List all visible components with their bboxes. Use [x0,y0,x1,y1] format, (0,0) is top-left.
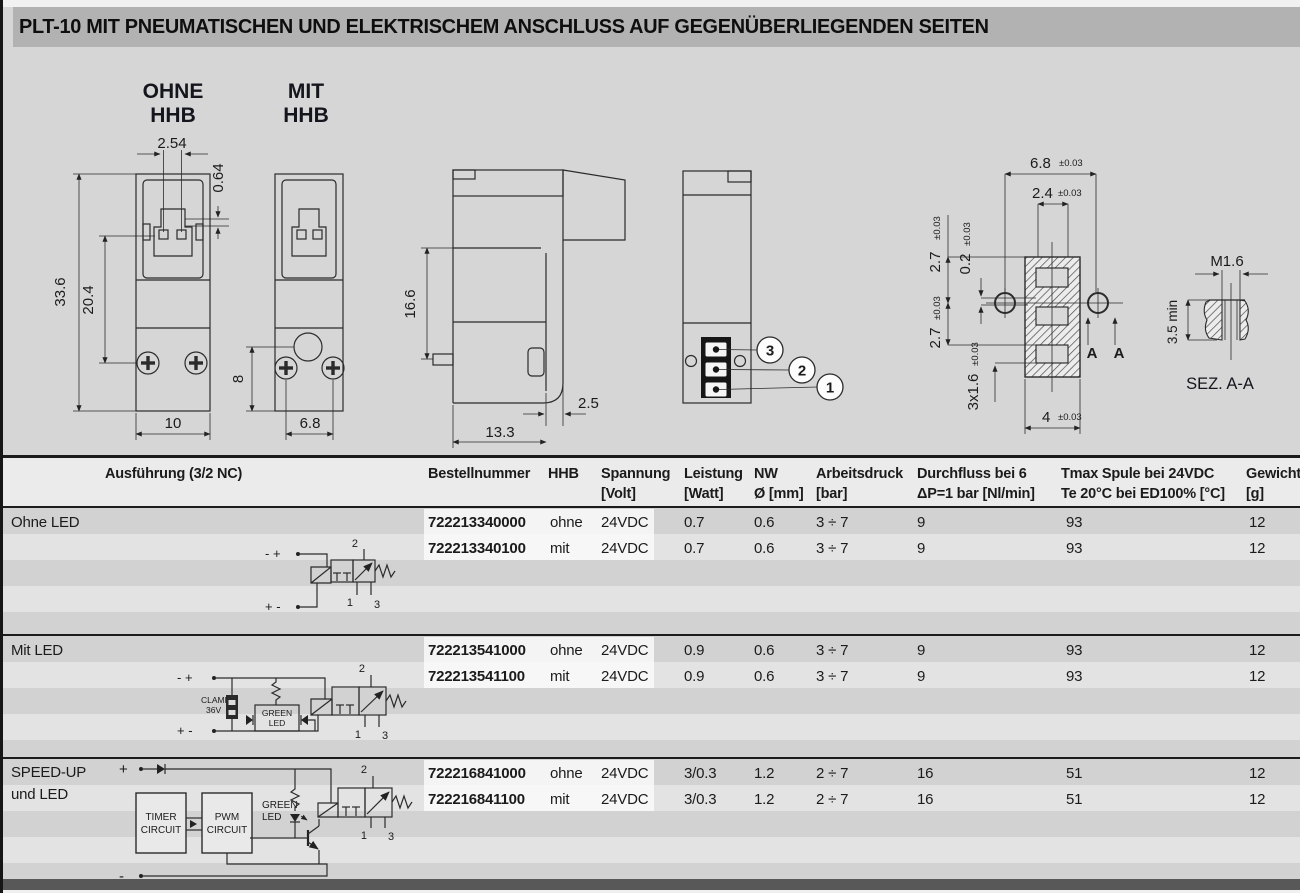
col-header-bestellnummer: Bestellnummer [428,464,530,484]
spring-symbol [386,695,406,707]
variant-label: HHB [150,104,196,127]
datasheet-page: PLT-10 MIT PNEUMATISCHEN UND ELEKTRISCHE… [0,0,1300,893]
svg-text:±0.03: ±0.03 [962,222,973,246]
svg-text:3: 3 [766,343,774,360]
port-number: 2 [359,663,365,675]
screw-icon [185,352,207,374]
dim-width: 10 [165,415,182,432]
dim-thread: M1.6 [1210,253,1243,270]
port-number: 3 [382,730,388,742]
green-led-label: LED [262,812,281,823]
footer-bar [3,879,1300,890]
page-title: PLT-10 MIT PNEUMATISCHEN UND ELEKTRISCHE… [19,7,989,47]
col-header-arbeitsdruck: Arbeitsdruck [bar] [816,464,903,504]
dim-slots: 3x1.6 [965,374,982,411]
section-arrow-label: A [1087,345,1098,362]
col-header-hhb: HHB [548,464,579,484]
dim-screw-offset: 8 [230,375,247,383]
terminal-label: - + [265,546,281,561]
dim-pin-spacing: 2.54 [157,135,186,152]
led-diode-icon [246,715,253,725]
drawing-front-view-ohne-hhb: OHNE HHB 2.54 0.64 [33,76,248,454]
timer-circuit-box: TIMER CIRCUIT [136,793,186,853]
led-diode-icon [290,814,307,838]
dim-base: 4 [1042,409,1050,426]
svg-text:±0.03: ±0.03 [1059,158,1083,169]
col-header-leistung: Leistung [Watt] [684,464,743,504]
spring-symbol [375,565,395,577]
col-header-tmax: Tmax Spule bei 24VDC Te 20°C bei ED100% … [1061,464,1225,504]
drawing-side-view: 16.6 2.5 13.3 [403,158,688,453]
dim-pitch2: 2.7 [927,328,944,349]
port-number: 3 [374,599,380,611]
svg-text:±0.03: ±0.03 [970,342,981,366]
dim-screw-spacing: 6.8 [300,415,321,432]
svg-text:±0.03: ±0.03 [1058,412,1082,423]
col-header-spannung: Spannung [Volt] [601,464,670,504]
dim-pitch1: 2.7 [927,252,944,273]
svg-text:CIRCUIT: CIRCUIT [141,825,182,836]
hhb-override-button [294,333,322,361]
dim-inner-height: 20.4 [80,285,97,314]
valve-symbol [331,549,395,595]
callout-port-1: 1 [817,374,843,400]
valve-symbol [338,776,412,828]
dim-depth: 13.3 [485,424,514,441]
svg-text:TIMER: TIMER [145,812,176,823]
svg-text:LED: LED [269,718,286,728]
dim-side-height: 16.6 [403,289,419,318]
dim-total-height: 33.6 [52,277,69,306]
diode-symbol [157,764,165,774]
svg-text:±0.03: ±0.03 [1058,188,1082,199]
dim-thread-depth: 3.5 min [1165,300,1180,344]
svg-text:CIRCUIT: CIRCUIT [207,825,248,836]
col-header-gewicht: Gewicht [g] [1246,464,1300,504]
svg-text:GREEN: GREEN [262,708,292,718]
drawing-front-view-mit-hhb: MIT HHB 8 6.8 [222,76,402,454]
section-arrow-label: A [1114,345,1125,362]
col-header-durchfluss: Durchfluss bei 6 ΔP=1 bar [Nl/min] [917,464,1035,504]
col-header-nw: NW Ø [mm] [754,464,804,504]
port-number: 1 [347,597,353,609]
terminal-label: + - [177,723,193,738]
pneumatic-pin [433,354,453,365]
clamp-diode-symbol [226,678,238,731]
table-row: 722213340000 ohne 24VDC 0.7 0.6 3 ÷ 7 9 … [3,510,1300,535]
transistor-symbol [250,826,319,849]
variant-label: OHNE [143,80,204,103]
spring-symbol [392,796,412,808]
connector-side [563,170,625,240]
solenoid-symbol [318,803,338,817]
svg-text:±0.03: ±0.03 [932,216,943,240]
screw-icon [137,352,159,374]
callout-port-2: 2 [789,357,815,383]
col-header-ausfuehrung: Ausführung (3/2 NC) [105,464,242,484]
schematic-speedup-led: + TIMER CIRCUIT PWM CIRCUIT GREEN LED [105,756,455,893]
drawing-port-pattern: 6.8 ±0.03 2.4 ±0.03 2.7 ±0.03 0.2 [918,140,1188,452]
section-material-left [1204,300,1222,340]
terminal-label: + [119,761,128,778]
port-number: 1 [355,729,361,741]
variant-label: MIT [288,80,324,103]
port-number: 1 [361,830,367,842]
terminal-label: - + [177,670,193,685]
port-number: 2 [352,538,358,550]
led-diode-icon [301,715,315,731]
resistor-symbol [272,678,280,705]
port-number: 3 [388,831,394,843]
screw-icon [322,357,344,379]
svg-text:±0.03: ±0.03 [932,296,943,320]
dim-offset: 2.5 [578,395,599,412]
green-led-label: GREEN [262,800,298,811]
drawing-section-a-a: M1.6 3.5 min SEZ. A-A [1165,228,1300,416]
svg-text:PWM: PWM [215,812,239,823]
drawing-ports-view: 3 2 1 [675,163,875,453]
variant-label: HHB [283,104,329,127]
valve-symbol [332,675,406,727]
pwm-circuit-box: PWM CIRCUIT [202,793,252,853]
dim-gap: 0.2 [957,254,974,275]
dim-outer: 6.8 [1030,155,1051,172]
title-bar: PLT-10 MIT PNEUMATISCHEN UND ELEKTRISCHE… [13,7,1300,47]
green-led-box: GREEN LED [255,705,299,731]
schematic-mit-led: - + + - CLAMP 36V GREEN LED [175,655,465,755]
schematic-ohne-led: - + + - 2 1 3 [261,533,451,621]
page-top-margin [3,0,1300,7]
dim-inner: 2.4 [1032,185,1053,202]
solenoid-symbol [311,567,331,583]
svg-text:2: 2 [798,363,806,380]
callout-port-3: 3 [757,337,783,363]
clamp-label: 36V [206,705,221,715]
section-caption: SEZ. A-A [1186,375,1254,393]
screw-icon [275,357,297,379]
svg-text:1: 1 [826,380,834,397]
table-row: 722213340100 mit 24VDC 0.7 0.6 3 ÷ 7 9 9… [3,536,1300,561]
port-bump [528,348,544,376]
terminal-label: + - [265,599,281,614]
order-number: 722213340000 [428,510,526,535]
solenoid-symbol [311,699,332,715]
port-number: 2 [361,764,367,776]
arrow-icon [190,820,197,828]
section-material-right [1240,300,1248,340]
